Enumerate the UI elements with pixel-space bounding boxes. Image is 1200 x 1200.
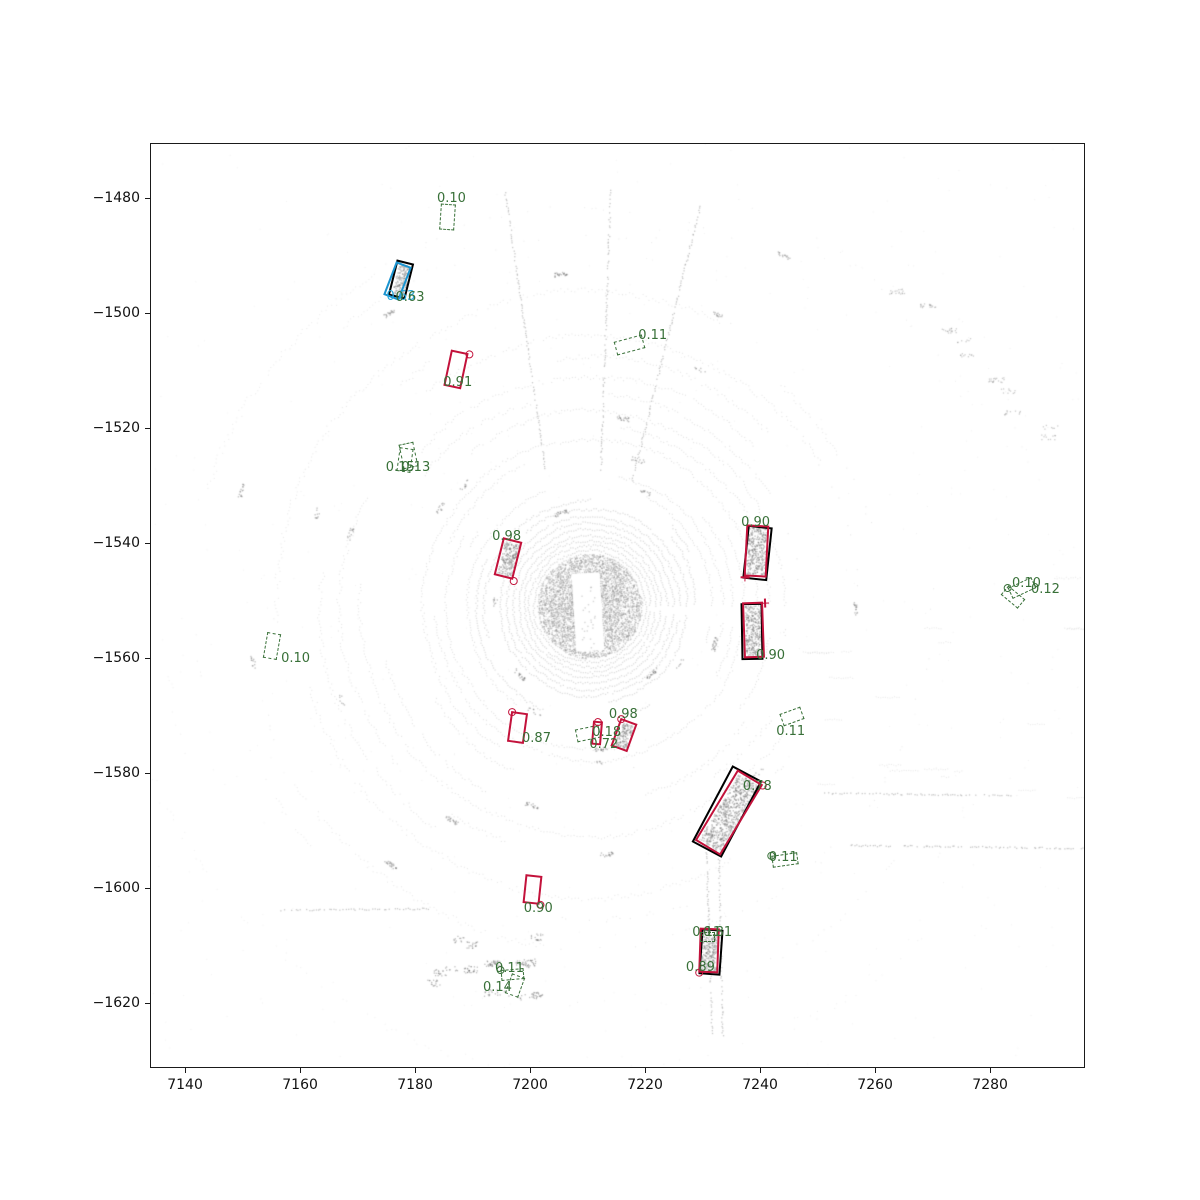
score-label: 0.13 — [401, 461, 430, 474]
score-label: 0.72 — [589, 738, 618, 751]
score-label: 0.87 — [522, 732, 551, 745]
score-label: 0.91 — [443, 376, 472, 389]
score-label: 0.98 — [609, 708, 638, 721]
score-label: 0.81 — [703, 926, 732, 939]
score-label: 0.12 — [1031, 583, 1060, 596]
score-label: 0.78 — [743, 780, 772, 793]
score-label: 0.11 — [495, 962, 524, 975]
figure: 71407160718072007220724072607280−1480−15… — [0, 0, 1200, 1200]
score-label: 0.98 — [492, 530, 521, 543]
score-label: 0.89 — [686, 961, 715, 974]
score-label: 0.14 — [483, 981, 512, 994]
score-labels-layer: 0.100.630.630.910.110.150.130.980.900.90… — [0, 0, 1200, 1200]
score-label: 0.10 — [281, 652, 310, 665]
score-label: 0.10 — [437, 192, 466, 205]
score-label: 0.63 — [396, 291, 425, 304]
score-label: 0.11 — [769, 851, 798, 864]
score-label: 0.11 — [776, 725, 805, 738]
score-label: 0.11 — [638, 329, 667, 342]
score-label: 0.90 — [756, 649, 785, 662]
score-label: 0.90 — [524, 902, 553, 915]
score-label: 0.90 — [741, 516, 770, 529]
